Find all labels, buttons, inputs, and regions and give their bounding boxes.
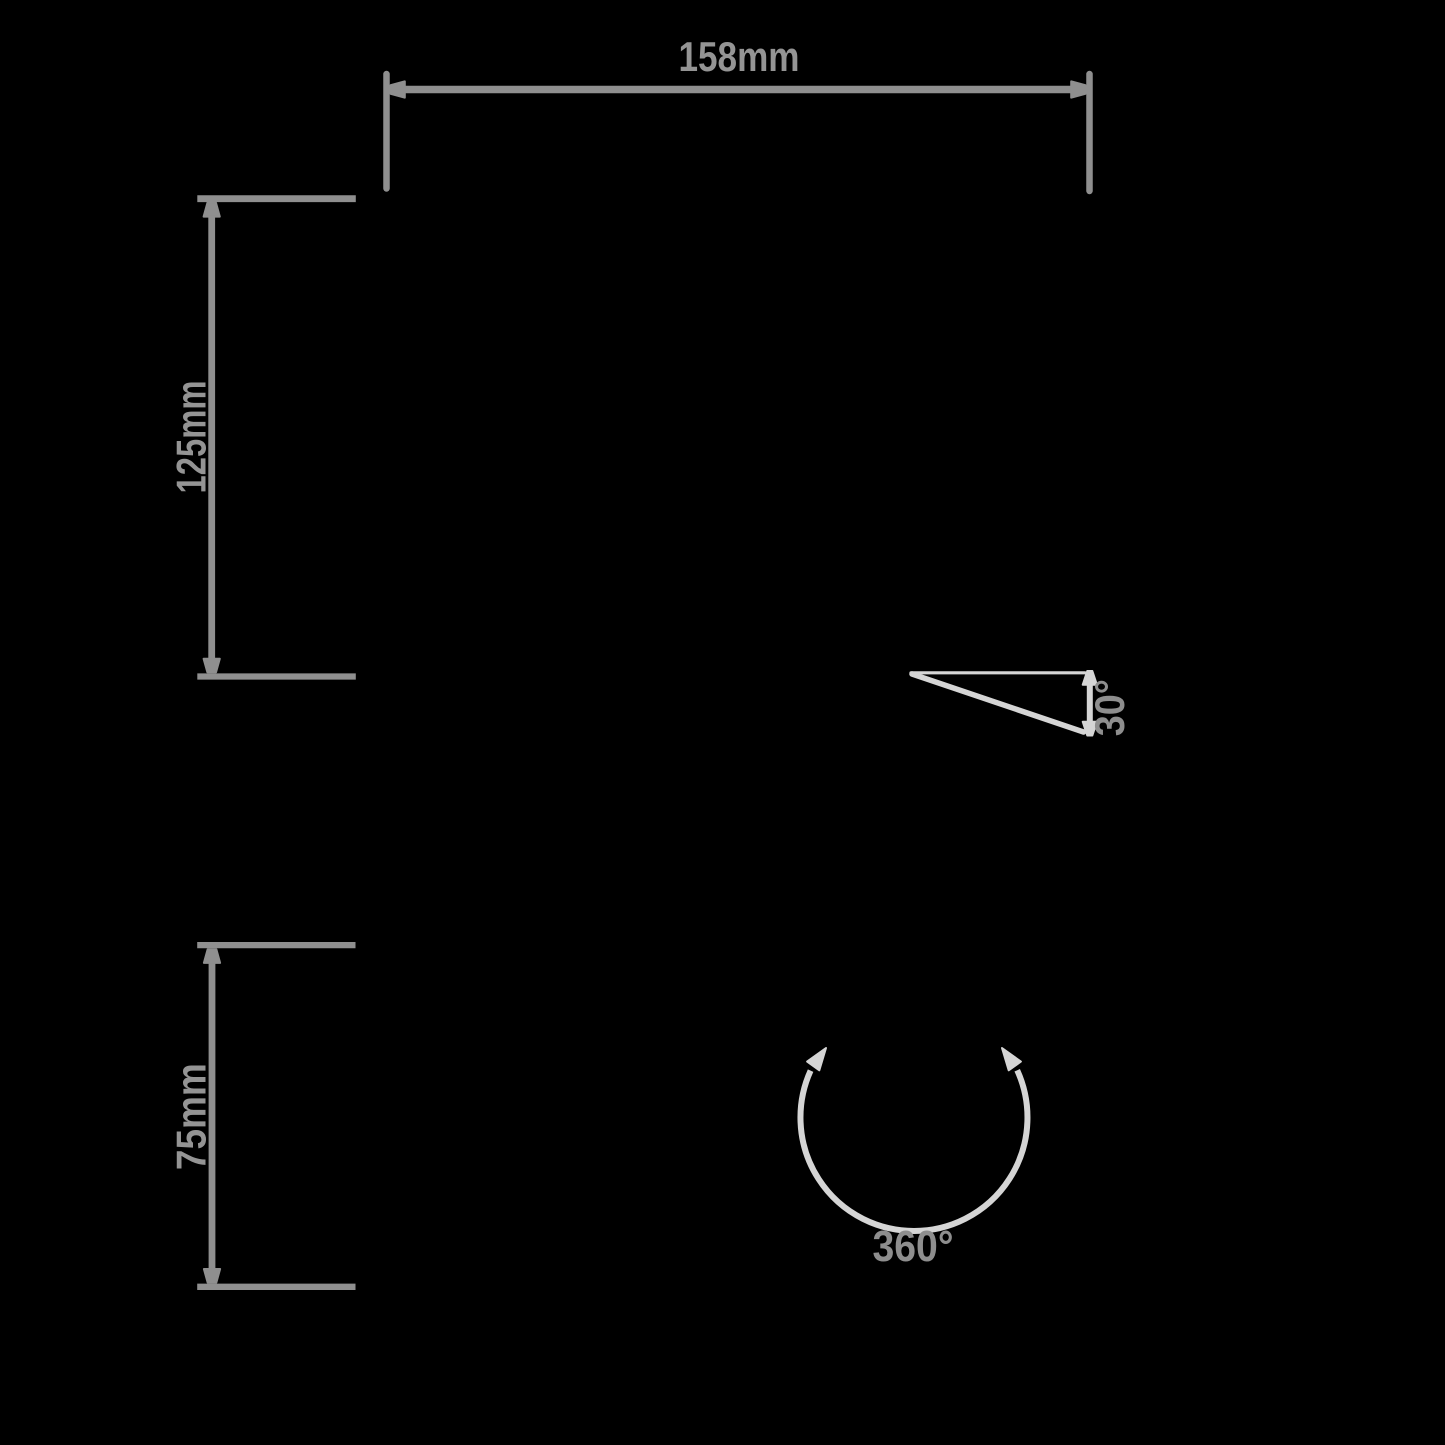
svg-text:75mm: 75mm: [168, 1063, 215, 1170]
svg-text:125mm: 125mm: [167, 381, 214, 494]
svg-text:158mm: 158mm: [679, 34, 800, 81]
svg-text:30°: 30°: [1087, 679, 1133, 736]
svg-text:360°: 360°: [873, 1221, 954, 1271]
